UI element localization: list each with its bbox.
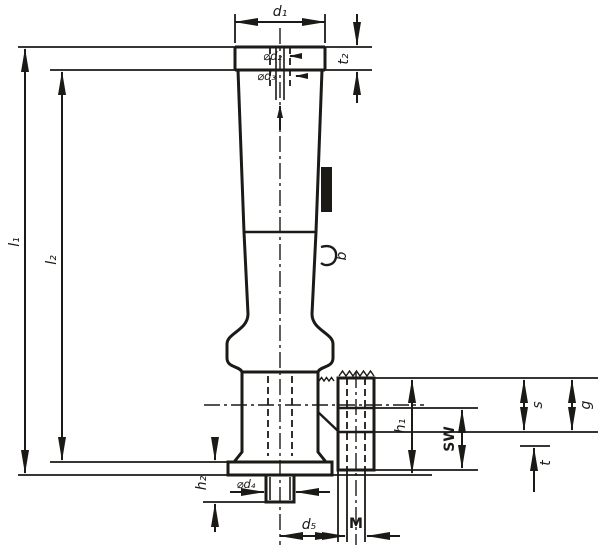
dim-label-s: s bbox=[530, 401, 546, 408]
knurl-marks-small bbox=[319, 378, 334, 382]
dimension-lines bbox=[25, 14, 572, 536]
dim-label-t: t bbox=[538, 460, 554, 466]
dim-label-h1: h₁ bbox=[393, 419, 409, 434]
hub-left-edge bbox=[234, 372, 242, 462]
taper-grip-handle bbox=[227, 47, 338, 502]
dim-label-t2: t₂ bbox=[336, 53, 352, 64]
dim-label-d2: ⌀d₂ bbox=[263, 49, 282, 63]
dim-label-d5: d₅ bbox=[302, 517, 317, 533]
dim-label-l2: l₂ bbox=[44, 255, 60, 265]
drawing-canvas: d₁ ⌀d₂ ⌀d₃ t₂ l₁ l₂ b h₁ SW s g t h₂ ⌀d₄… bbox=[0, 0, 600, 548]
dim-label-l1: l₁ bbox=[7, 237, 23, 247]
dim-label-d1: d₁ bbox=[273, 4, 288, 20]
dim-label-g: g bbox=[578, 400, 594, 409]
dim-label-d3: ⌀d₃ bbox=[257, 69, 276, 83]
dim-label-d4: ⌀d₄ bbox=[237, 477, 256, 491]
dimension-labels: d₁ ⌀d₂ ⌀d₃ t₂ l₁ l₂ b h₁ SW s g t h₂ ⌀d₄… bbox=[7, 4, 594, 533]
dim-label-sw: SW bbox=[442, 426, 458, 452]
body-left-contour bbox=[227, 70, 248, 372]
dim-label-b: b bbox=[334, 251, 350, 260]
dim-label-h2: h₂ bbox=[194, 475, 210, 490]
side-clip-detail bbox=[321, 167, 332, 212]
body-right-contour bbox=[312, 70, 333, 372]
hub-bushing-transition bbox=[318, 412, 338, 431]
technical-drawing: d₁ ⌀d₂ ⌀d₃ t₂ l₁ l₂ b h₁ SW s g t h₂ ⌀d₄… bbox=[0, 0, 600, 548]
dim-label-m: M bbox=[349, 516, 363, 532]
